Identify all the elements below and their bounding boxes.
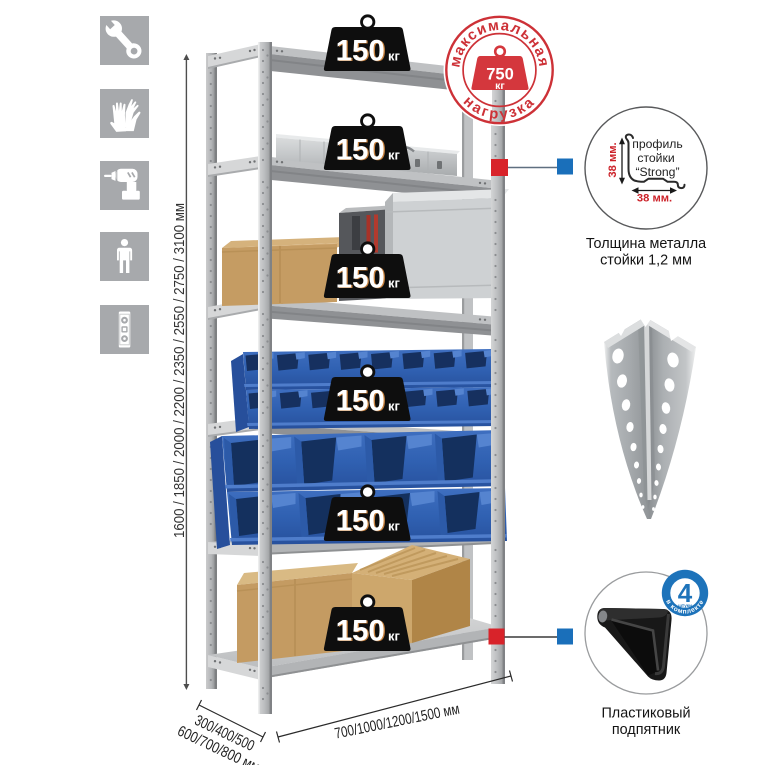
svg-text:профиль: профиль (632, 137, 682, 151)
svg-text:150: 150 (336, 262, 385, 295)
svg-text:150: 150 (336, 35, 385, 68)
svg-text:кг: кг (388, 148, 401, 163)
svg-text:38 мм.: 38 мм. (637, 193, 672, 205)
svg-text:Толщина металла: Толщина металла (586, 236, 706, 252)
svg-text:38 мм.: 38 мм. (607, 142, 619, 177)
svg-text:кг: кг (495, 80, 505, 92)
svg-text:кг: кг (388, 49, 401, 64)
svg-text:Пластиковый: Пластиковый (601, 706, 690, 722)
svg-text:150: 150 (336, 505, 385, 538)
svg-text:кг: кг (388, 276, 401, 291)
svg-text:подпятник: подпятник (612, 722, 681, 738)
svg-text:150: 150 (336, 385, 385, 418)
svg-text:стойки 1,2 мм: стойки 1,2 мм (600, 253, 692, 269)
svg-text:150: 150 (336, 615, 385, 648)
svg-text:кг: кг (388, 519, 401, 534)
svg-text:150: 150 (336, 134, 385, 167)
svg-text:кг: кг (388, 629, 401, 644)
svg-text:штуки: штуки (678, 603, 692, 608)
svg-text:“Strong”: “Strong” (635, 165, 679, 179)
svg-text:стойки: стойки (637, 151, 674, 165)
svg-text:кг: кг (388, 399, 401, 414)
svg-text:1600 / 1850 / 2000 / 2200 / 23: 1600 / 1850 / 2000 / 2200 / 2350 / 2550 … (171, 203, 188, 538)
